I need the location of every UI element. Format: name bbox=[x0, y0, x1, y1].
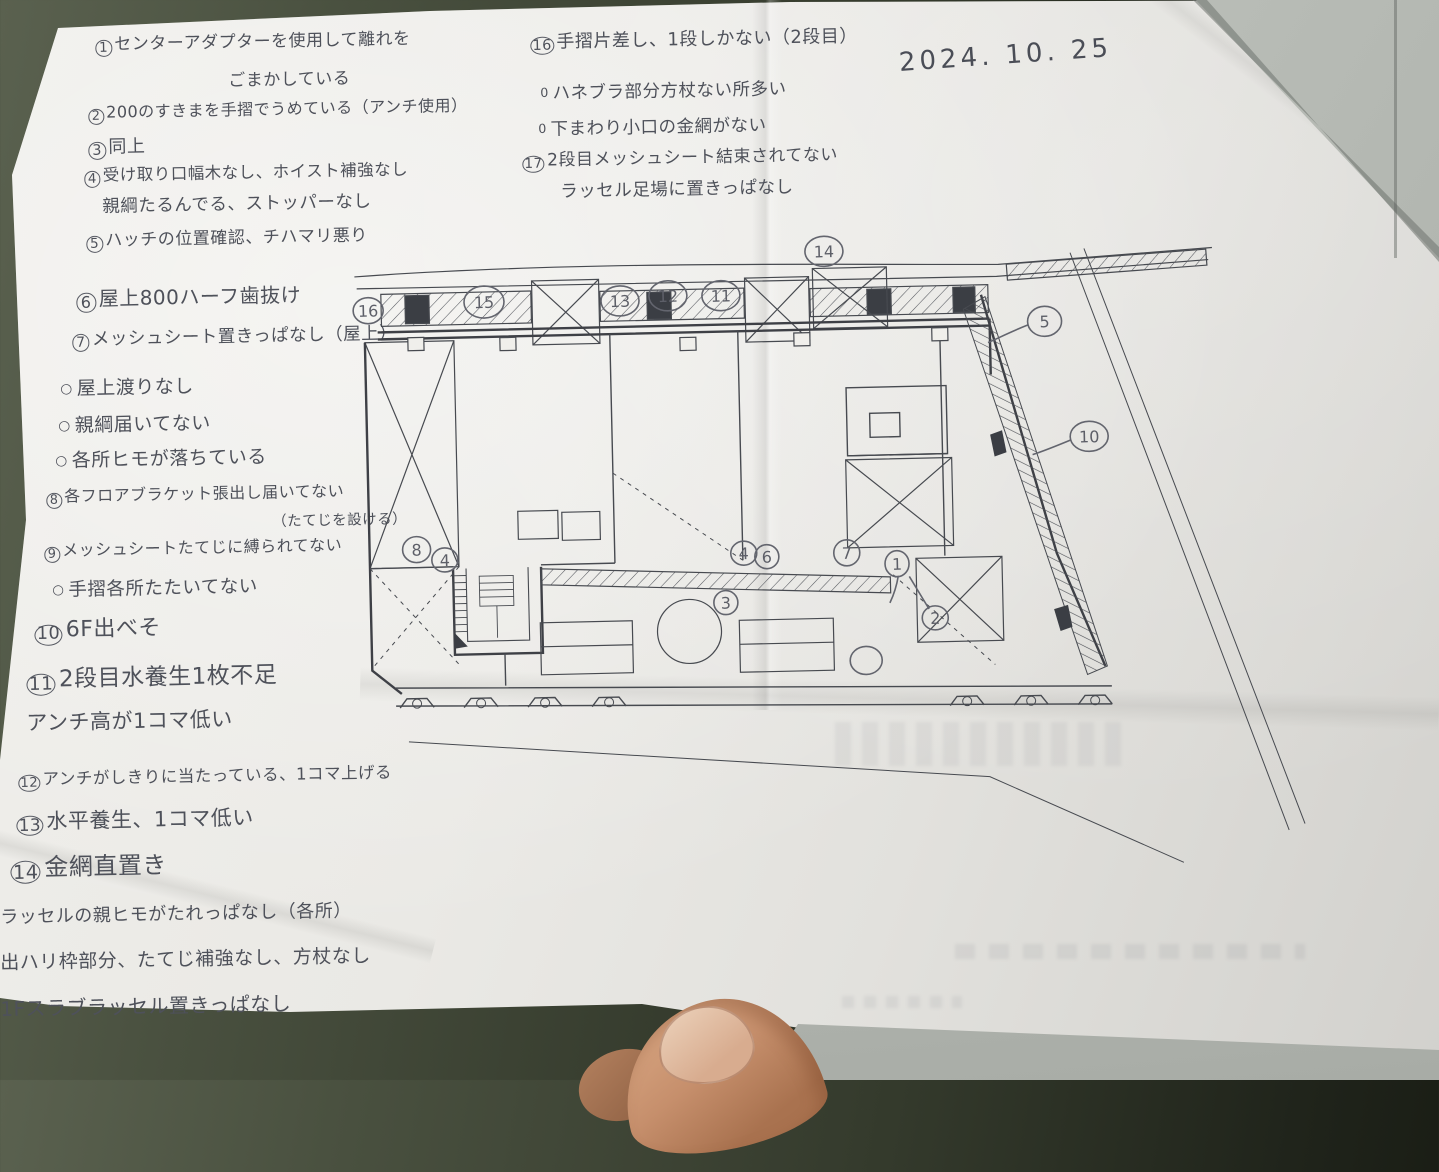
note-text: 受け取り口幅木なし、ホイスト補強なし bbox=[103, 160, 409, 185]
svg-text:7: 7 bbox=[841, 544, 852, 563]
annotation-10: 10 bbox=[1032, 421, 1109, 455]
annotation-8: 8 bbox=[402, 536, 431, 563]
circled-number: 4 bbox=[84, 171, 100, 187]
note-text: 各所ヒモが落ちている bbox=[72, 446, 267, 472]
note-text: 200のすきまを手摺でうめている（アンチ使用） bbox=[106, 96, 468, 122]
note-line: 6屋上800ハーフ歯抜け bbox=[76, 279, 301, 313]
svg-text:13: 13 bbox=[610, 292, 631, 311]
circled-number: 13 bbox=[16, 815, 43, 836]
svg-text:5: 5 bbox=[1039, 312, 1050, 331]
note-text: 下まわり小口の金網がない bbox=[550, 116, 766, 140]
svg-text:14: 14 bbox=[814, 242, 835, 261]
note-text: メッシュシートたてじに縛られてない bbox=[62, 535, 342, 559]
note-line: ○親綱届いてない bbox=[58, 408, 211, 438]
note-line: ラッセル足場に置きっぱなし bbox=[560, 174, 794, 203]
note-line: ○手摺各所たたいてない bbox=[52, 572, 258, 602]
note-text: 2段目メッシュシート結束されてない bbox=[547, 145, 838, 171]
note-text: 1Fスラブラッセル置きっぱなし bbox=[0, 991, 291, 1021]
note-line: 0下まわり小口の金網がない bbox=[538, 112, 767, 141]
circled-number: 10 bbox=[34, 624, 63, 646]
bullet-marker: 0 bbox=[540, 85, 549, 100]
annotation-7: 7 bbox=[833, 540, 860, 567]
annotation-4b: 4 bbox=[730, 541, 757, 566]
note-text: センターアダプターを使用して離れを bbox=[114, 29, 411, 55]
annotation-14: 14 bbox=[805, 236, 844, 267]
note-text: 6F出べそ bbox=[65, 616, 161, 643]
circled-number: 6 bbox=[76, 293, 96, 313]
bullet-marker: ○ bbox=[55, 452, 68, 468]
note-line: 5ハッチの位置確認、チハマリ悪り bbox=[86, 221, 368, 253]
note-line: 1Fスラブラッセル置きっぱなし bbox=[0, 987, 291, 1022]
svg-text:1: 1 bbox=[892, 555, 903, 574]
note-text: 親綱たるんでる、ストッパーなし bbox=[102, 192, 371, 217]
note-line: 14金網直置き bbox=[10, 845, 167, 884]
note-line: アンチ高が1コマ低い bbox=[26, 703, 233, 737]
note-text: 金網直置き bbox=[44, 851, 167, 881]
note-line: 3同上 bbox=[88, 132, 146, 160]
circled-number: 3 bbox=[88, 142, 106, 160]
annotation-5: 5 bbox=[987, 306, 1062, 343]
svg-text:12: 12 bbox=[658, 287, 679, 306]
bullet-marker: ○ bbox=[58, 417, 71, 433]
note-line: 112段目水養生1枚不足 bbox=[26, 655, 278, 696]
plan-printed-lines bbox=[354, 244, 1306, 881]
note-text: 各フロアブラケット張出し届いてない bbox=[64, 481, 344, 505]
circled-number: 8 bbox=[46, 493, 62, 509]
annotation-3: 3 bbox=[714, 590, 739, 615]
circled-number: 14 bbox=[10, 860, 41, 884]
svg-text:3: 3 bbox=[721, 593, 732, 612]
note-text: ごまかしている bbox=[228, 69, 350, 91]
note-text: 手摺各所たたいてない bbox=[68, 576, 258, 601]
note-text: 水平養生、1コマ低い bbox=[46, 805, 254, 833]
svg-text:2: 2 bbox=[930, 609, 941, 628]
photo-of-handwritten-inspection-notes: { "date_label": "2024. 10. 25", "colors"… bbox=[0, 0, 1439, 1080]
note-text: 同上 bbox=[108, 136, 145, 158]
note-line: 13水平養生、1コマ低い bbox=[16, 801, 254, 836]
note-text: ハッチの位置確認、チハマリ悪り bbox=[105, 226, 368, 251]
circled-number: 1 bbox=[95, 40, 112, 57]
note-line: 0ハネブラ部分方杖ない所多い bbox=[540, 75, 787, 105]
annotation-16: 16 bbox=[353, 297, 384, 324]
svg-text:4: 4 bbox=[738, 544, 749, 563]
svg-text:15: 15 bbox=[474, 293, 495, 312]
annotation-mark bbox=[850, 646, 883, 675]
note-line: 106F出べそ bbox=[34, 610, 161, 646]
note-text: 屋上渡りなし bbox=[77, 375, 194, 399]
note-line: ○各所ヒモが落ちている bbox=[55, 442, 267, 473]
note-text: アンチがしきりに当たっている、1コマ上げる bbox=[42, 763, 392, 789]
note-line: ごまかしている bbox=[228, 64, 350, 91]
bullet-marker: ○ bbox=[52, 582, 64, 597]
circled-number: 16 bbox=[530, 37, 554, 55]
circled-number: 12 bbox=[18, 775, 40, 792]
svg-text:6: 6 bbox=[762, 548, 773, 567]
floor-plan-drawing: 16 15 13 12 11 14 5 10 8 4 4 6 7 1 3 2 bbox=[346, 217, 1336, 909]
finger bbox=[592, 992, 822, 1112]
note-text: アンチ高が1コマ低い bbox=[26, 707, 233, 735]
note-text: 手摺片差し、1段しかない（2段目） bbox=[556, 26, 858, 53]
svg-text:8: 8 bbox=[411, 541, 422, 560]
svg-text:4: 4 bbox=[440, 551, 451, 570]
svg-text:16: 16 bbox=[358, 301, 379, 320]
note-line: 親綱たるんでる、ストッパーなし bbox=[102, 188, 372, 218]
note-text: ラッセル足場に置きっぱなし bbox=[560, 178, 794, 202]
annotation-6: 6 bbox=[755, 544, 780, 569]
circled-number: 2 bbox=[88, 109, 104, 125]
plastic-folder-seam bbox=[1394, 0, 1397, 258]
ink-bleed-through bbox=[842, 996, 962, 1008]
svg-text:11: 11 bbox=[711, 286, 732, 305]
circled-number: 17 bbox=[522, 156, 545, 173]
note-line: ○屋上渡りなし bbox=[60, 371, 194, 401]
note-text: 親綱届いてない bbox=[75, 412, 211, 437]
note-text: 屋上800ハーフ歯抜け bbox=[98, 283, 301, 311]
svg-text:10: 10 bbox=[1079, 427, 1100, 446]
note-text: ハネブラ部分方杖ない所多い bbox=[552, 79, 786, 103]
circled-number: 11 bbox=[26, 673, 56, 696]
bullet-marker: ○ bbox=[60, 380, 73, 396]
note-text: 2段目水養生1枚不足 bbox=[59, 662, 278, 692]
circled-number: 9 bbox=[44, 547, 60, 563]
circled-number: 5 bbox=[86, 236, 103, 253]
ink-bleed-through bbox=[955, 944, 1305, 959]
bullet-marker: 0 bbox=[538, 121, 547, 136]
annotation-4a: 4 bbox=[432, 548, 459, 573]
circled-number: 7 bbox=[72, 334, 89, 351]
